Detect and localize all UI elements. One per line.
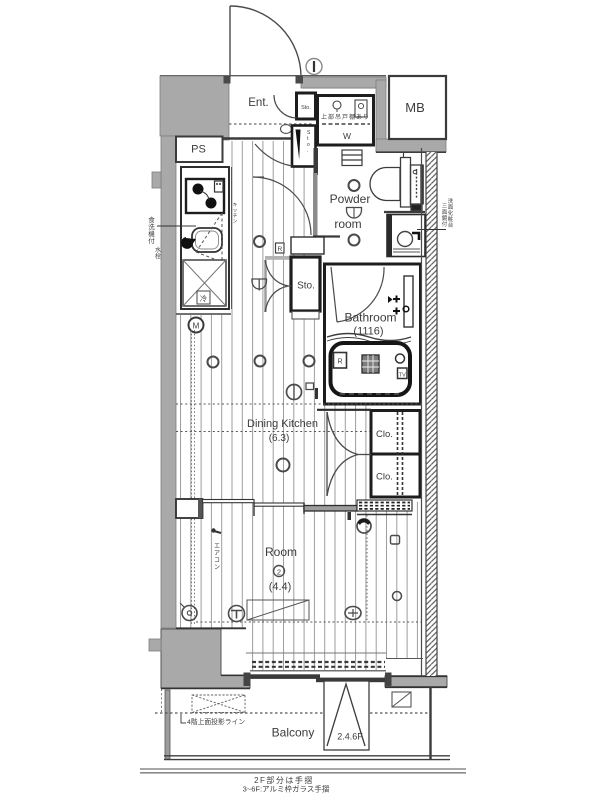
svg-text:R: R: [337, 359, 342, 366]
svg-text:Clo.: Clo.: [376, 429, 393, 440]
svg-text:MB: MB: [405, 100, 425, 115]
svg-text:キッチン: キッチン: [233, 203, 238, 225]
svg-text:R: R: [277, 246, 282, 253]
svg-text:Sto.: Sto.: [297, 281, 315, 292]
svg-text:上部吊戸棚あり: 上部吊戸棚あり: [321, 113, 370, 121]
svg-text:洗面化粧台: 洗面化粧台: [448, 197, 454, 229]
svg-text:(4.4): (4.4): [269, 581, 292, 593]
svg-text:Ent.: Ent.: [248, 97, 268, 109]
svg-text:.: .: [307, 148, 308, 154]
svg-text:Sto.: Sto.: [301, 105, 311, 111]
svg-text:Powder: Powder: [330, 192, 371, 206]
svg-text:水栓: 水栓: [155, 246, 161, 261]
svg-text:W: W: [343, 131, 351, 141]
svg-text:PS: PS: [191, 144, 206, 156]
svg-text:Balcony: Balcony: [272, 726, 315, 740]
svg-text:Clo.: Clo.: [376, 472, 393, 483]
svg-text:Bathroom: Bathroom: [344, 311, 396, 325]
svg-text:Dining Kitchen: Dining Kitchen: [247, 418, 318, 430]
svg-text:2F部分は手摺: 2F部分は手摺: [254, 775, 314, 785]
svg-text:冷: 冷: [200, 294, 207, 303]
svg-text:M: M: [193, 322, 200, 331]
svg-text:(6.3): (6.3): [269, 433, 290, 444]
svg-text:食洗機付: 食洗機付: [148, 215, 155, 245]
svg-text:2: 2: [277, 568, 281, 577]
svg-text:room: room: [334, 217, 361, 231]
svg-text:4階上面投影ライン: 4階上面投影ライン: [187, 717, 245, 726]
svg-text:Room: Room: [265, 545, 297, 559]
svg-text:(1116): (1116): [353, 326, 383, 338]
svg-text:3~6F:アルミ枠ガラス手摺: 3~6F:アルミ枠ガラス手摺: [243, 784, 330, 794]
svg-text:TV: TV: [399, 373, 406, 379]
svg-text:2.4.6F: 2.4.6F: [337, 732, 363, 742]
